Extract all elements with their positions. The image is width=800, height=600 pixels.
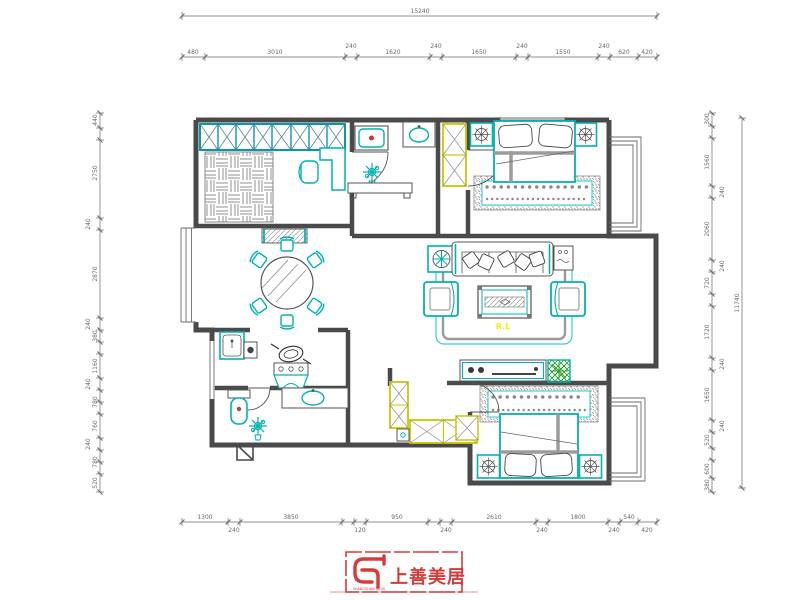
dim-label: 1720 (704, 324, 711, 339)
coffee-table (478, 286, 531, 318)
study-room (200, 124, 345, 222)
hall-washbasin (403, 122, 435, 147)
dim-label: 540 (623, 514, 635, 521)
kitchen-window (209, 341, 215, 399)
dim-label: 520 (92, 477, 99, 489)
dim-label: 1650 (704, 387, 711, 402)
sofa (452, 242, 553, 276)
armchair-right (551, 282, 585, 316)
dim-label: 3010 (267, 49, 282, 56)
dining-table (261, 257, 313, 309)
dining-room (248, 229, 325, 329)
tv-plant (548, 360, 570, 382)
dim-label: 240 (516, 43, 528, 50)
stove (271, 344, 311, 388)
dining-chair (306, 297, 325, 316)
dim-label: 2060 (704, 221, 711, 236)
dim-label: 240 (85, 438, 92, 450)
tv-cabinet (460, 360, 546, 381)
bay-window-top-right (609, 137, 641, 231)
dim-label: 11740 (734, 293, 741, 312)
dim-label: 3850 (283, 514, 298, 521)
dim-label: 240 (430, 43, 442, 50)
dim-label: 380 (92, 330, 99, 342)
tatami-bed (205, 152, 273, 222)
dim-label: 240 (719, 260, 726, 272)
dim-label: 420 (641, 49, 653, 56)
dim-label: 240 (85, 318, 92, 330)
dim-label: 760 (92, 420, 99, 432)
dim-label: 240 (85, 378, 92, 390)
nightstand-lamp (575, 123, 597, 146)
dim-label: 1300 (197, 514, 212, 521)
bedroom1 (471, 121, 597, 182)
dim-label: 1550 (555, 49, 570, 56)
dim-label: 240 (719, 420, 726, 432)
floor-plan-canvas: R.L (0, 0, 800, 600)
small-appliance (244, 342, 257, 358)
kitchen-sink (220, 332, 244, 359)
dimension-annotations: 1524048030102401620240165024015502406204… (85, 8, 746, 534)
nightstand-lamp (478, 455, 500, 478)
end-table (554, 246, 573, 270)
living-room: R.L (424, 242, 585, 382)
dim-label: 240 (440, 527, 452, 534)
dim-label: 1560 (704, 154, 711, 169)
bay-window-bottom-right (609, 398, 645, 481)
dim-label: 380 (704, 479, 711, 491)
washing-machine (355, 126, 388, 150)
dim-label: 2610 (486, 514, 501, 521)
floor-plan-page: R.L (0, 0, 800, 600)
dim-label: 240 (719, 358, 726, 370)
dim-label: 240 (345, 43, 357, 50)
dim-label: 300 (704, 113, 711, 125)
dim-label: 240 (85, 218, 92, 230)
dining-chair (248, 250, 267, 269)
dim-label: 240 (598, 43, 610, 50)
dim-label: 420 (641, 527, 653, 534)
dim-label: 240 (719, 186, 726, 198)
desk-chair (299, 161, 318, 183)
side-table-plant (428, 246, 455, 272)
bedroom2 (456, 414, 602, 478)
living-room-label: R.L (496, 322, 510, 331)
dim-label: 480 (187, 49, 199, 56)
dim-label: 1650 (471, 49, 486, 56)
dim-label: 780 (92, 456, 99, 468)
kitchen (220, 332, 311, 388)
bathroom (228, 388, 348, 440)
logo-brand-text: 上善美居 (390, 566, 466, 588)
dim-label: 520 (704, 434, 711, 446)
toilet (228, 390, 250, 424)
dim-label: 1620 (385, 49, 400, 56)
nightstand-lamp (471, 123, 493, 146)
dim-label: 780 (92, 396, 99, 408)
dining-window (181, 228, 196, 322)
utility-room (348, 122, 435, 198)
dim-label: 600 (704, 463, 711, 475)
dim-label: 2870 (92, 266, 99, 281)
hall-wardrobe (443, 124, 466, 186)
dim-label: 240 (536, 527, 548, 534)
dim-label: 1160 (92, 358, 99, 373)
dining-chair (306, 250, 325, 269)
dining-chair (248, 297, 267, 316)
dim-label: 120 (354, 527, 366, 534)
desk (320, 148, 345, 190)
closet-stool (397, 429, 409, 441)
nightstand-lamp (580, 455, 602, 478)
logo-glyph-icon (355, 556, 384, 587)
brand-logo: SHANGSHAN MEIJU 上善美居 (330, 552, 478, 592)
bench (348, 183, 412, 198)
wardrobe-box (456, 416, 478, 440)
dim-label: 15240 (410, 8, 429, 15)
washbasin (282, 388, 348, 408)
plant-icon (249, 417, 267, 440)
range-hood (274, 375, 308, 388)
dim-label: 240 (608, 527, 620, 534)
dim-label: 2750 (92, 165, 99, 180)
dining-chair (280, 315, 294, 329)
armchair-left (424, 282, 458, 316)
logo-micro-text: SHANGSHAN MEIJU (353, 587, 386, 591)
study-wardrobe (200, 124, 345, 150)
dim-label: 1800 (570, 514, 585, 521)
dim-label: 620 (618, 49, 630, 56)
dim-label: 950 (391, 514, 403, 521)
dim-label: 720 (704, 277, 711, 289)
bathroom-door (248, 388, 270, 410)
dim-label: 440 (92, 114, 99, 126)
dim-label: 240 (228, 527, 240, 534)
